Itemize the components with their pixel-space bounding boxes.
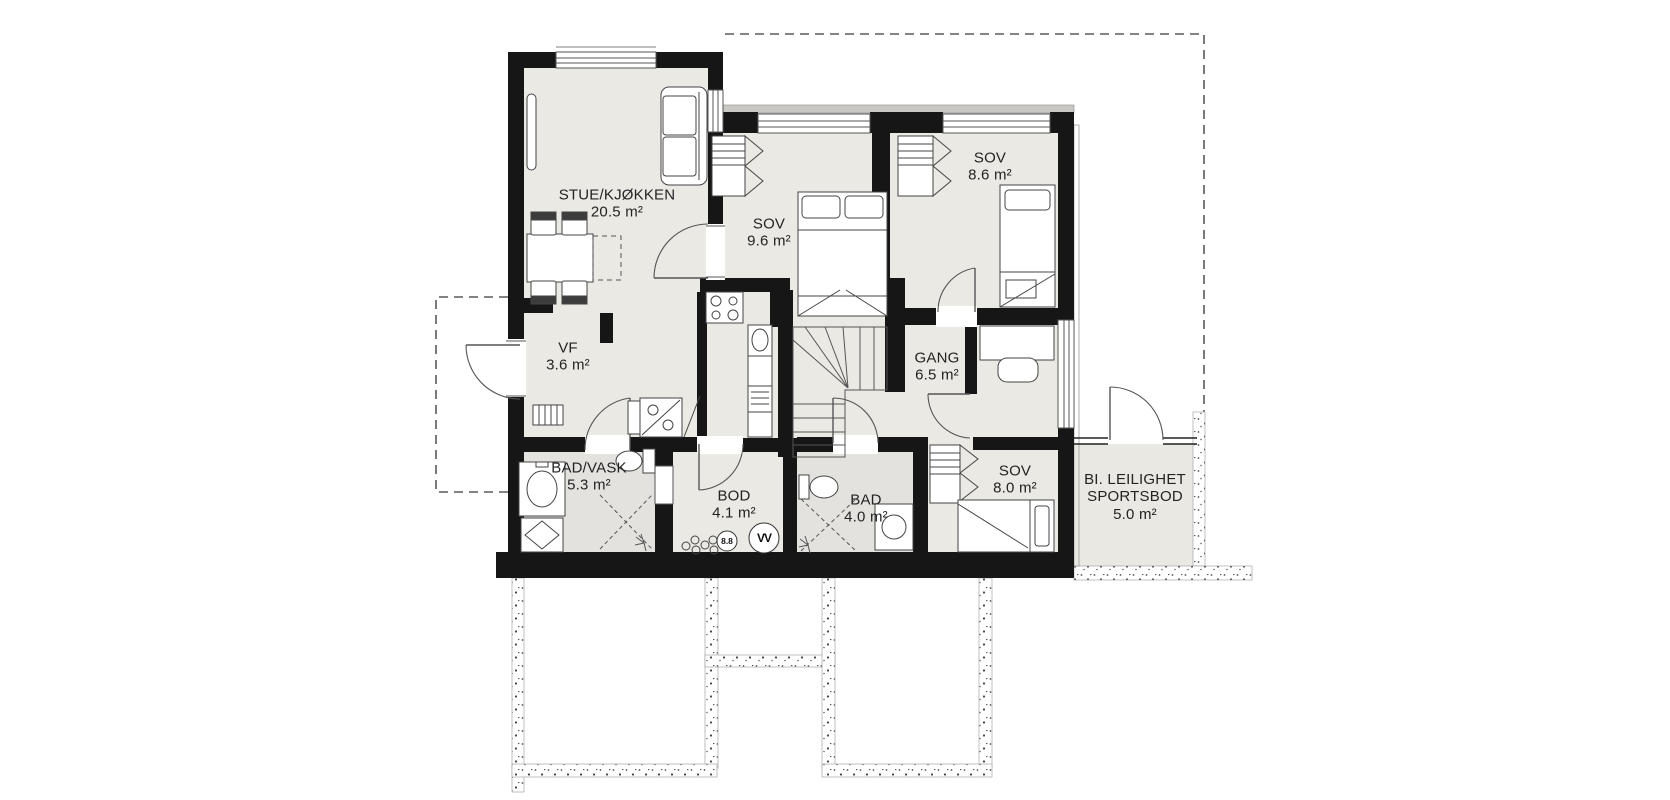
badvask-bod-opening	[655, 466, 673, 504]
desk-chair	[998, 358, 1038, 382]
room-name: BI. LEILIGHET	[1084, 471, 1186, 488]
window-stue-right	[708, 90, 723, 132]
room-name: STUE/KJØKKEN	[559, 187, 676, 204]
entrance-door	[466, 339, 526, 399]
sportsbod-top-wall	[1074, 438, 1197, 444]
sportsbod-right-wall	[1193, 412, 1205, 566]
room-label-sportsbod: BI. LEILIGHET SPORTSBOD 5.0 m²	[1084, 471, 1186, 523]
room-label-gang: GANG 6.5 m²	[915, 350, 960, 385]
room-label-bad: BAD 4.0 m²	[844, 492, 888, 527]
window-stue-top	[556, 52, 656, 68]
room-label-sov-86: SOV 8.6 m²	[968, 150, 1012, 185]
chair	[531, 281, 556, 304]
room-name: VF	[546, 340, 590, 357]
room-name: BAD	[844, 492, 888, 509]
manifold-label: 8.8	[721, 536, 733, 546]
chair	[531, 212, 556, 235]
water-heater-label: VV	[757, 531, 771, 545]
room-label-sov-96: SOV 9.6 m²	[747, 216, 791, 251]
stove	[706, 292, 743, 323]
window-right-wall	[1058, 320, 1074, 428]
window-sov86-top	[943, 114, 1050, 133]
room-area: 4.0 m²	[844, 509, 888, 526]
room-name: SOV	[993, 463, 1037, 480]
double-bed	[798, 192, 887, 316]
floorplan-canvas: STUE/KJØKKEN 20.5 m² SOV 9.6 m² SOV 8.6 …	[0, 0, 1670, 800]
sofa	[661, 87, 707, 185]
room-label-sov-80: SOV 8.0 m²	[993, 463, 1037, 498]
single-bed	[1000, 185, 1055, 307]
shoe-rack	[533, 405, 563, 425]
chair	[562, 281, 587, 304]
washing-machine	[521, 518, 563, 552]
room-area: 5.3 m²	[551, 477, 627, 494]
single-bed	[958, 500, 1054, 552]
toilet	[799, 475, 838, 499]
room-name: BOD	[712, 488, 756, 505]
room-area: 8.6 m²	[968, 167, 1012, 184]
room-label-bod: BOD 4.1 m²	[712, 488, 756, 523]
room-label-vf: VF 3.6 m²	[546, 340, 590, 375]
radiator	[527, 94, 536, 170]
room-name: SOV	[968, 150, 1012, 167]
room-area: 20.5 m²	[559, 204, 676, 221]
room-label-badvask: BAD/VASK 5.3 m²	[551, 460, 627, 495]
room-area: 3.6 m²	[546, 357, 590, 374]
room-area: 6.5 m²	[915, 367, 960, 384]
room-area: 4.1 m²	[712, 505, 756, 522]
room-area: 5.0 m²	[1084, 506, 1186, 523]
sportsbod-bottom-wall	[1074, 566, 1252, 580]
sportsbod-door	[1110, 387, 1163, 440]
kitchen-counter	[748, 325, 772, 437]
room-area: 9.6 m²	[747, 233, 791, 250]
room-name: SOV	[747, 216, 791, 233]
room-label-stue: STUE/KJØKKEN 20.5 m²	[559, 187, 676, 222]
room-area: 8.0 m²	[993, 480, 1037, 497]
room-name-line2: SPORTSBOD	[1084, 488, 1186, 505]
window-sov96-top	[758, 114, 870, 133]
floorplan-drawing	[0, 0, 1670, 800]
room-name: GANG	[915, 350, 960, 367]
room-name: BAD/VASK	[551, 460, 627, 477]
